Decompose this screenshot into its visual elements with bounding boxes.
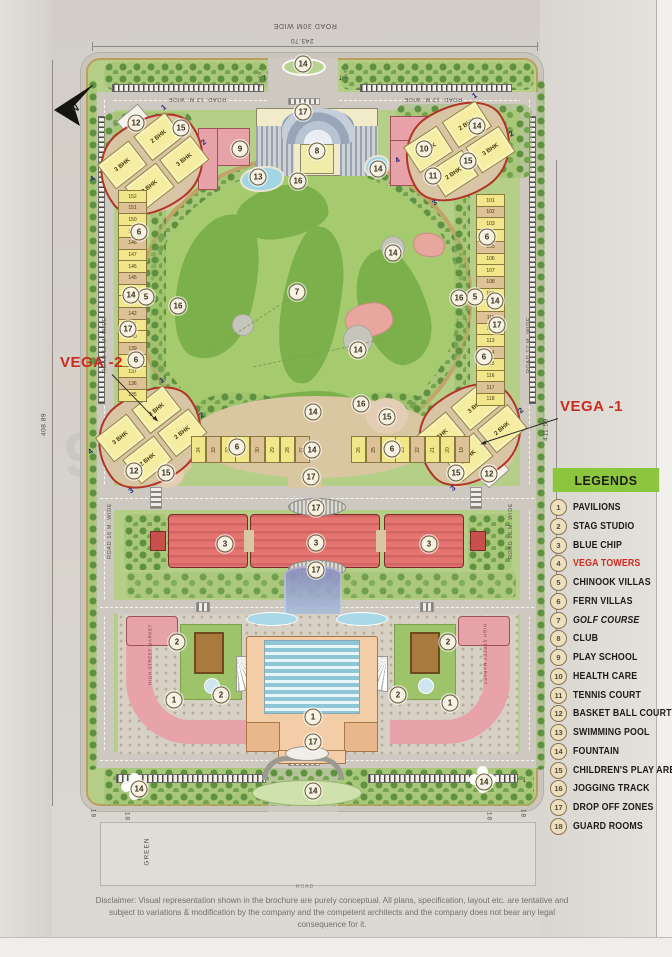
legend-item-number: 13: [550, 724, 567, 741]
entry-arrow-icon: ↑: [262, 72, 267, 82]
vega-1-label: VEGA -1: [560, 398, 623, 415]
legend-item-label: SWIMMING POOL: [573, 727, 650, 738]
map-marker: 14: [370, 161, 387, 178]
map-marker: 17: [303, 469, 320, 486]
legend-item: 15CHILDREN'S PLAY AREA: [550, 762, 672, 779]
map-marker: 1: [442, 695, 459, 712]
road-label-mid-right: ROAD 16 M. WIDE: [508, 486, 514, 576]
map-marker: 17: [120, 321, 137, 338]
guard-room-label: 18: [124, 810, 131, 824]
villa-plot: 21: [425, 436, 440, 463]
map-marker: 11: [425, 168, 442, 185]
legend-item-label: CLUB: [573, 633, 598, 644]
map-marker: 12: [481, 466, 498, 483]
map-marker: 14: [305, 783, 322, 800]
legend-item-number: 9: [550, 649, 567, 666]
disclaimer-text: Disclaimer: Visual representation shown …: [92, 895, 572, 931]
map-marker: 14: [295, 56, 312, 73]
map-marker: 2: [440, 634, 457, 651]
map-marker: 15: [379, 409, 396, 426]
high-street-market-label: HIGH STREET MARKET: [148, 610, 153, 700]
road-label-mid-left: ROAD 16 M. WIDE: [107, 486, 113, 576]
dim-top: 243.70: [262, 37, 342, 44]
entry-arrow-icon: ↑: [512, 774, 517, 784]
legend-item-number: 6: [550, 593, 567, 610]
villa-plot: 20: [440, 436, 455, 463]
villa-plot-number: 22: [415, 447, 421, 453]
map-marker: 1: [305, 709, 322, 726]
villa-plot: 28: [280, 436, 295, 463]
legend-title: LEGENDS: [553, 468, 659, 492]
legend-item-number: 11: [550, 687, 567, 704]
villa-plot-number: 19: [459, 447, 465, 453]
green-strip-label: GREEN: [144, 822, 151, 882]
legend-item-number: 16: [550, 780, 567, 797]
map-marker: 16: [290, 173, 307, 190]
map-marker: 3: [421, 536, 438, 553]
map-marker: 12: [126, 463, 143, 480]
legend-item-number: 1: [550, 499, 567, 516]
villa-plot: 34: [191, 436, 206, 463]
legend-item: 16JOGGING TRACK: [550, 780, 660, 797]
cluster-corner-number: 4: [86, 446, 95, 456]
guard-room-label: 18: [486, 810, 493, 824]
legend-item-number: 5: [550, 574, 567, 591]
villa-plot-number: 29: [270, 447, 276, 453]
high-street-market-label: HIGH STREET MARKET: [483, 610, 488, 700]
map-marker: 14: [476, 774, 493, 791]
map-marker: 16: [170, 298, 187, 315]
map-marker: 14: [131, 781, 148, 798]
map-marker: 15: [158, 465, 175, 482]
cluster-corner-number: 4: [393, 155, 401, 165]
villa-plot-number: 21: [430, 447, 436, 453]
villa-plot-number: 30: [255, 447, 261, 453]
map-marker: 2: [390, 687, 407, 704]
legend-item: 1PAVILIONS: [550, 499, 627, 516]
map-marker: 15: [173, 120, 190, 137]
map-marker: 17: [308, 562, 325, 579]
map-marker: 14: [304, 442, 321, 459]
legend-item-label: GOLF COURSE: [573, 615, 639, 626]
legend-item: 7GOLF COURSE: [550, 612, 649, 629]
legend-item: 17DROP OFF ZONES: [550, 799, 665, 816]
map-marker: 14: [305, 404, 322, 421]
vega-2-label: VEGA -2: [60, 354, 123, 371]
legend-item-number: 12: [550, 705, 567, 722]
map-marker: 5: [138, 289, 155, 306]
legend-item: 10HEALTH CARE: [550, 668, 646, 685]
guard-room-label: 18: [520, 807, 527, 821]
legend-item-label: GUARD ROOMS: [573, 821, 643, 832]
map-marker: 16: [353, 396, 370, 413]
villa-plot: 29: [265, 436, 280, 463]
villa-plot: 30: [250, 436, 265, 463]
villa-plot: 19: [455, 436, 470, 463]
legend-item-number: 15: [550, 762, 567, 779]
legend-item-label: HEALTH CARE: [573, 671, 637, 682]
site-plan-page: 99acres.com: [0, 0, 672, 957]
map-marker: 2: [213, 687, 230, 704]
legend-item-label: CHINOOK VILLAS: [573, 577, 651, 588]
legend-item-label: PAVILIONS: [573, 502, 621, 513]
villa-plot: 25: [366, 436, 381, 463]
legend-item: 3BLUE CHIP: [550, 537, 629, 554]
map-marker: 14: [123, 287, 140, 304]
legend-item-number: 7: [550, 612, 567, 629]
road-label-bottom: ROAD: [285, 884, 325, 890]
legend-list: 1PAVILIONS2STAG STUDIO3BLUE CHIP4VEGA TO…: [550, 499, 670, 829]
villa-plot-number: 25: [370, 447, 376, 453]
legend-item-label: FOUNTAIN: [573, 746, 619, 757]
map-marker: 17: [489, 317, 506, 334]
villa-plot-number: 26: [356, 447, 362, 453]
map-marker: 6: [128, 352, 145, 369]
legend-item-label: FERN VILLAS: [573, 596, 633, 607]
map-marker: 6: [479, 229, 496, 246]
villa-plot: 118: [476, 393, 505, 406]
legend-item-label: BLUE CHIP: [573, 540, 622, 551]
map-marker: 16: [451, 290, 468, 307]
legend-item-number: 17: [550, 799, 567, 816]
road-label-left: ROAD 12 M. WIDE: [102, 300, 108, 390]
legend-item-label: CHILDREN'S PLAY AREA: [573, 765, 672, 776]
map-marker: 14: [350, 342, 367, 359]
exit-arrow-icon: ↓: [522, 774, 527, 784]
map-marker: 14: [487, 293, 504, 310]
map-marker: 6: [476, 349, 493, 366]
road-label-top: ROAD 30M WIDE: [250, 22, 360, 29]
map-marker: 17: [305, 734, 322, 751]
cluster-corner-number: 4: [88, 173, 97, 183]
legend-item: 13SWIMMING POOL: [550, 724, 660, 741]
legend-item: 2STAG STUDIO: [550, 518, 643, 535]
map-marker: 10: [416, 141, 433, 158]
villa-plot-number: 28: [284, 447, 290, 453]
legend-item-number: 18: [550, 818, 567, 835]
legend-item: 18GUARD ROOMS: [550, 818, 652, 835]
map-marker: 3: [217, 536, 234, 553]
legend-item: 9PLAY SCHOOL: [550, 649, 646, 666]
exit-label: EXIT: [344, 57, 349, 97]
legend-item: 4VEGA TOWERS: [550, 555, 650, 572]
guard-room-label: 18: [90, 807, 97, 821]
legend-item: 5CHINOOK VILLAS: [550, 574, 661, 591]
road-label-inner-top-left: ROAD. 12 M. WIDE: [152, 96, 242, 102]
legend-item-label: JOGGING TRACK: [573, 783, 650, 794]
villa-plot-number: 34: [196, 447, 202, 453]
villa-plot: 26: [351, 436, 366, 463]
map-marker: 6: [229, 439, 246, 456]
cluster-corner-number: 1: [157, 375, 166, 385]
map-marker: 17: [308, 500, 325, 517]
road-label-inner-top-right: ROAD. 12 M. WIDE: [388, 96, 478, 102]
map-marker: 2: [169, 634, 186, 651]
dim-left: 408.89: [41, 395, 48, 455]
legend-item-label: PLAY SCHOOL: [573, 652, 638, 663]
cluster-top-left: 3 BHK2 BHK2 BHK3 BHK1234: [94, 107, 211, 220]
legend-item-number: 10: [550, 668, 567, 685]
map-marker: 15: [460, 153, 477, 170]
villa-plot: 33: [206, 436, 221, 463]
map-marker: 7: [289, 284, 306, 301]
map-marker: 17: [295, 104, 312, 121]
villa-plot-number: 20: [444, 447, 450, 453]
villa-plot: 22: [410, 436, 425, 463]
legend-item: 11TENNIS COURT: [550, 687, 650, 704]
legend-item: 6FERN VILLAS: [550, 593, 641, 610]
road-label-right: ROAD 12 M. WIDE: [526, 300, 532, 390]
map-marker: 14: [469, 118, 486, 135]
map-marker: 15: [448, 465, 465, 482]
villa-plot-number: 33: [210, 447, 216, 453]
map-marker: 1: [166, 692, 183, 709]
villa-plot-number: 23: [400, 447, 406, 453]
cluster-corner-number: 1: [159, 102, 168, 112]
legend-item-label: STAG STUDIO: [573, 521, 634, 532]
map-marker: 6: [384, 441, 401, 458]
legend-item-number: 2: [550, 518, 567, 535]
legend-item-number: 14: [550, 743, 567, 760]
legend-item: 14FOUNTAIN: [550, 743, 626, 760]
legend-item-number: 3: [550, 537, 567, 554]
map-marker: 14: [385, 245, 402, 262]
legend-item: 8CLUB: [550, 630, 602, 647]
map-marker: 9: [232, 141, 249, 158]
legend-item-label: TENNIS COURT: [573, 690, 641, 701]
legend-item-number: 4: [550, 555, 567, 572]
map-marker: 8: [309, 143, 326, 160]
map-marker: 6: [131, 224, 148, 241]
map-marker: 3: [308, 535, 325, 552]
map-marker: 12: [128, 115, 145, 132]
legend-item-label: BASKET BALL COURT: [573, 708, 672, 719]
map-marker: 5: [467, 289, 484, 306]
map-marker: 13: [250, 169, 267, 186]
legend-item-number: 8: [550, 630, 567, 647]
dim-right: 411.59: [543, 400, 550, 460]
exit-arrow-icon: ↓: [338, 72, 343, 82]
legend-item-label: DROP OFF ZONES: [573, 802, 654, 813]
legend-item-label: VEGA TOWERS: [573, 558, 640, 569]
legend-item: 12BASKET BALL COURT: [550, 705, 672, 722]
